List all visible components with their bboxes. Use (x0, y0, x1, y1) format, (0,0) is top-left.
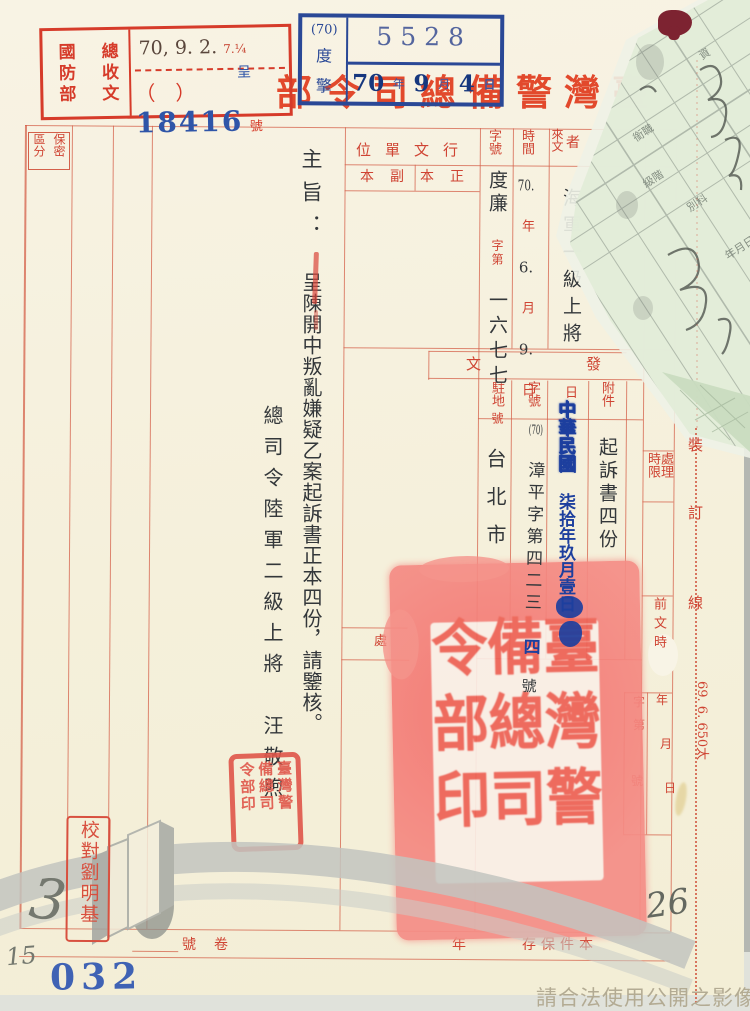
proofreader-stamp-text: 校對劉明基 (78, 820, 98, 940)
qianwen-month: 月 (660, 735, 672, 752)
security-box-label-left: 區分 (33, 133, 45, 169)
registry-char1: 度 (316, 43, 332, 67)
form-print-code: 69. 6. 650太 (699, 681, 713, 777)
received-number: 18416 (136, 105, 244, 140)
laiwen-zidi: 字第 (490, 239, 504, 267)
security-classification-box: 區分 保密 (28, 132, 70, 170)
received-hao: 號 (250, 119, 263, 134)
signature-title: 總司令陸軍二級上將 (260, 405, 284, 684)
subject-label: 主旨： (299, 148, 323, 247)
blue-page-number: 032 (50, 955, 144, 999)
laiwen-time-day: 9. (517, 342, 535, 357)
fawen-number-correction: 四 (519, 638, 539, 656)
received-stamp-org: 國防部 (55, 42, 73, 105)
received-paren: （ ） (135, 80, 195, 105)
laiwen-number: 一六七七 (486, 290, 508, 390)
laiwen-zihao-value: 度廉 字第 一六七七 號 (487, 170, 506, 424)
fawen-zhudi-value: 台北市 (485, 448, 505, 562)
laiwen-time-value: 70. 年 6. 月 9. 日 (518, 178, 533, 396)
dark-red-blob2 (668, 26, 680, 40)
received-number-row: （ ） 18416 號 (135, 75, 290, 140)
registry-body: 5528 70 年 9 月 4 日 (348, 18, 501, 103)
green-attachment-slip: 資 銜職 級階 別科 年月日 (540, 0, 750, 470)
registry-month-label: 月 (438, 75, 450, 92)
laiwen-month-label: 月 (519, 301, 534, 314)
registry-date-year: 70 (352, 70, 384, 97)
registry-char2: 擎 (316, 73, 332, 97)
qianwen-day: 日 (664, 779, 676, 796)
date-stamp-blob (556, 596, 583, 618)
archival-document-scan: 區分 保密 部令司總備警灣臺 國防部 總收文 70, 9. 2. 7.¼ （ ）… (0, 0, 750, 1011)
header-xingwen-danwei: 位單文行 (356, 139, 472, 160)
registry-date: 70 年 9 月 4 日 (348, 65, 500, 103)
proofreader-stamp: 校對劉明基 (65, 816, 110, 942)
laiwen-year-label: 年 (519, 219, 534, 232)
binding-char-ding: 訂 (688, 502, 703, 523)
usage-watermark: 請合法使用公開之影像 (536, 982, 750, 1011)
registry-number: 5528 (348, 18, 500, 66)
qianwen-year: 年 (656, 691, 668, 708)
laiwen-time-month: 6. (517, 260, 535, 275)
received-date: 70, 9. 2. 7.¼ (138, 36, 246, 60)
laiwen-time-year: 70. (517, 178, 535, 193)
received-stamp-divider (135, 67, 285, 72)
received-stamp-org-cell: 國防部 總收文 (42, 30, 131, 118)
registry-date-month: 9 (413, 70, 429, 97)
binding-char-xian: 線 (688, 592, 703, 613)
received-stamp: 國防部 總收文 70, 9. 2. 7.¼ （ ） 18416 號 呈 (39, 24, 293, 120)
pencil-note-15: 15 (5, 941, 38, 972)
binding-char-zhuang: 裝 (688, 434, 703, 455)
laiwen-unit: 度廉 (486, 170, 508, 216)
header-zihao: 字號 (487, 129, 500, 155)
registry-date-day: 4 (459, 70, 475, 97)
received-date-main: 70, 9. 2. (138, 36, 217, 59)
laiwen-day-label: 日 (519, 383, 534, 396)
received-stamp-unit: 總收文 (98, 41, 116, 104)
signature-column: 總司令陸軍二級上將 汪敬煦 (262, 405, 282, 808)
security-box-label-right: 保密 (53, 133, 65, 169)
received-stamp-body: 70, 9. 2. 7.¼ （ ） 18416 號 呈 (130, 27, 289, 116)
registry-code-cell: (70) 度 擎 (302, 17, 349, 101)
slip-smudge2 (616, 191, 638, 219)
subject-column: 主旨： 呈陳開中叛亂嫌疑乙案起訴書正本四份，請鑒核。 (300, 148, 321, 734)
registry-stamp: (70) 度 擎 5528 70 年 9 月 4 日 (298, 13, 505, 106)
qianwen-label: 前文時 (652, 597, 665, 654)
pencil-note-26: 26 (643, 881, 691, 927)
slip-smudge (636, 44, 664, 80)
date-stamp-light: 柒拾年玖月壹日 (555, 493, 575, 612)
fawen-number: 漳平字第四二三 (521, 461, 545, 615)
header-fawen-wen: 文 (466, 353, 481, 374)
header-copy-left: 本副 (360, 166, 420, 186)
header-copy-right: 本正 (420, 166, 480, 186)
subject-text: 呈陳開中叛亂嫌疑乙案起訴書正本四份，請鑒核。 (299, 272, 323, 734)
fawen-hao: 號 (519, 678, 537, 693)
registry-year-label: 年 (393, 75, 405, 92)
registry-code: (70) (311, 22, 338, 37)
registry-day-label: 日 (483, 76, 495, 93)
received-cheng-mark: 呈 (237, 62, 251, 82)
slip-smudge3 (633, 296, 653, 320)
received-date-small: 7.¼ (223, 42, 246, 56)
laiwen-hao: 號 (490, 412, 504, 424)
red-check-mark2 (314, 310, 318, 330)
header-time: 時間 (520, 129, 533, 155)
